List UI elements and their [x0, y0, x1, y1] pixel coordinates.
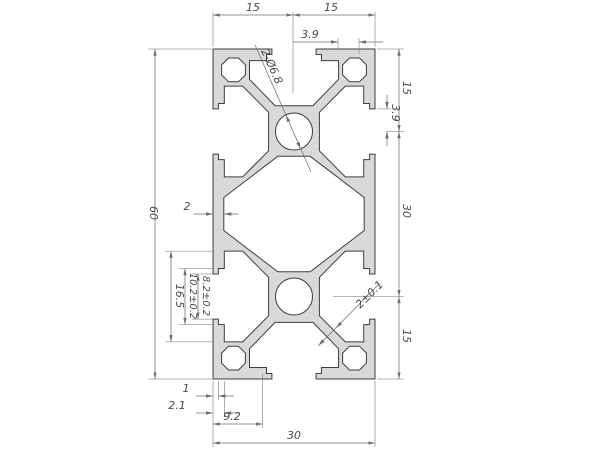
dim-label-bottom-21: 2.1 [168, 399, 186, 412]
dim-label-slot-82: 8.2±0.2 [200, 276, 211, 316]
dim-label-bottom-30: 30 [287, 429, 301, 442]
dim-label-wall-2: 2 [184, 200, 191, 213]
dim-label-right-30: 30 [400, 204, 413, 218]
arrowhead [385, 102, 389, 109]
leader-label-web: 2±0.1 [353, 278, 386, 311]
arrowhead [224, 212, 231, 216]
arrowhead [286, 115, 291, 122]
dim-label-top-39: 3.9 [301, 28, 319, 41]
dim-label-bottom-92: 9.2 [223, 410, 241, 423]
dim-label-bottom-1: 1 [183, 382, 190, 395]
dim-label-right-15-bottom: 15 [400, 329, 413, 343]
dim-label-left-60: 60 [147, 206, 160, 220]
arrowhead [218, 394, 225, 397]
dim-label-top-right-15: 15 [324, 1, 338, 14]
leader-label-core-holes: 2-Ø6.8 [258, 47, 285, 86]
dim-label-right-39: 3.9 [389, 104, 402, 122]
dim-label-right-15-top: 15 [400, 81, 413, 95]
dim-label-top-left-15: 15 [246, 1, 260, 14]
dim-label-slot-102: 10.2±0.2 [187, 273, 198, 320]
arrowhead [206, 411, 213, 414]
arrowhead [206, 394, 213, 397]
drawing-canvas: 15 15 3.9 15 3.9 30 15 60 2 8.2±0.2 10.2… [0, 0, 600, 450]
drawing-page: 15 15 3.9 15 3.9 30 15 60 2 8.2±0.2 10.2… [0, 0, 600, 450]
arrowhead [331, 40, 338, 44]
arrowhead [206, 212, 213, 216]
arrowhead [385, 132, 389, 139]
arrowhead [359, 40, 366, 44]
dim-label-slot-165: 16.5 [173, 284, 186, 309]
arrowhead [296, 142, 301, 149]
